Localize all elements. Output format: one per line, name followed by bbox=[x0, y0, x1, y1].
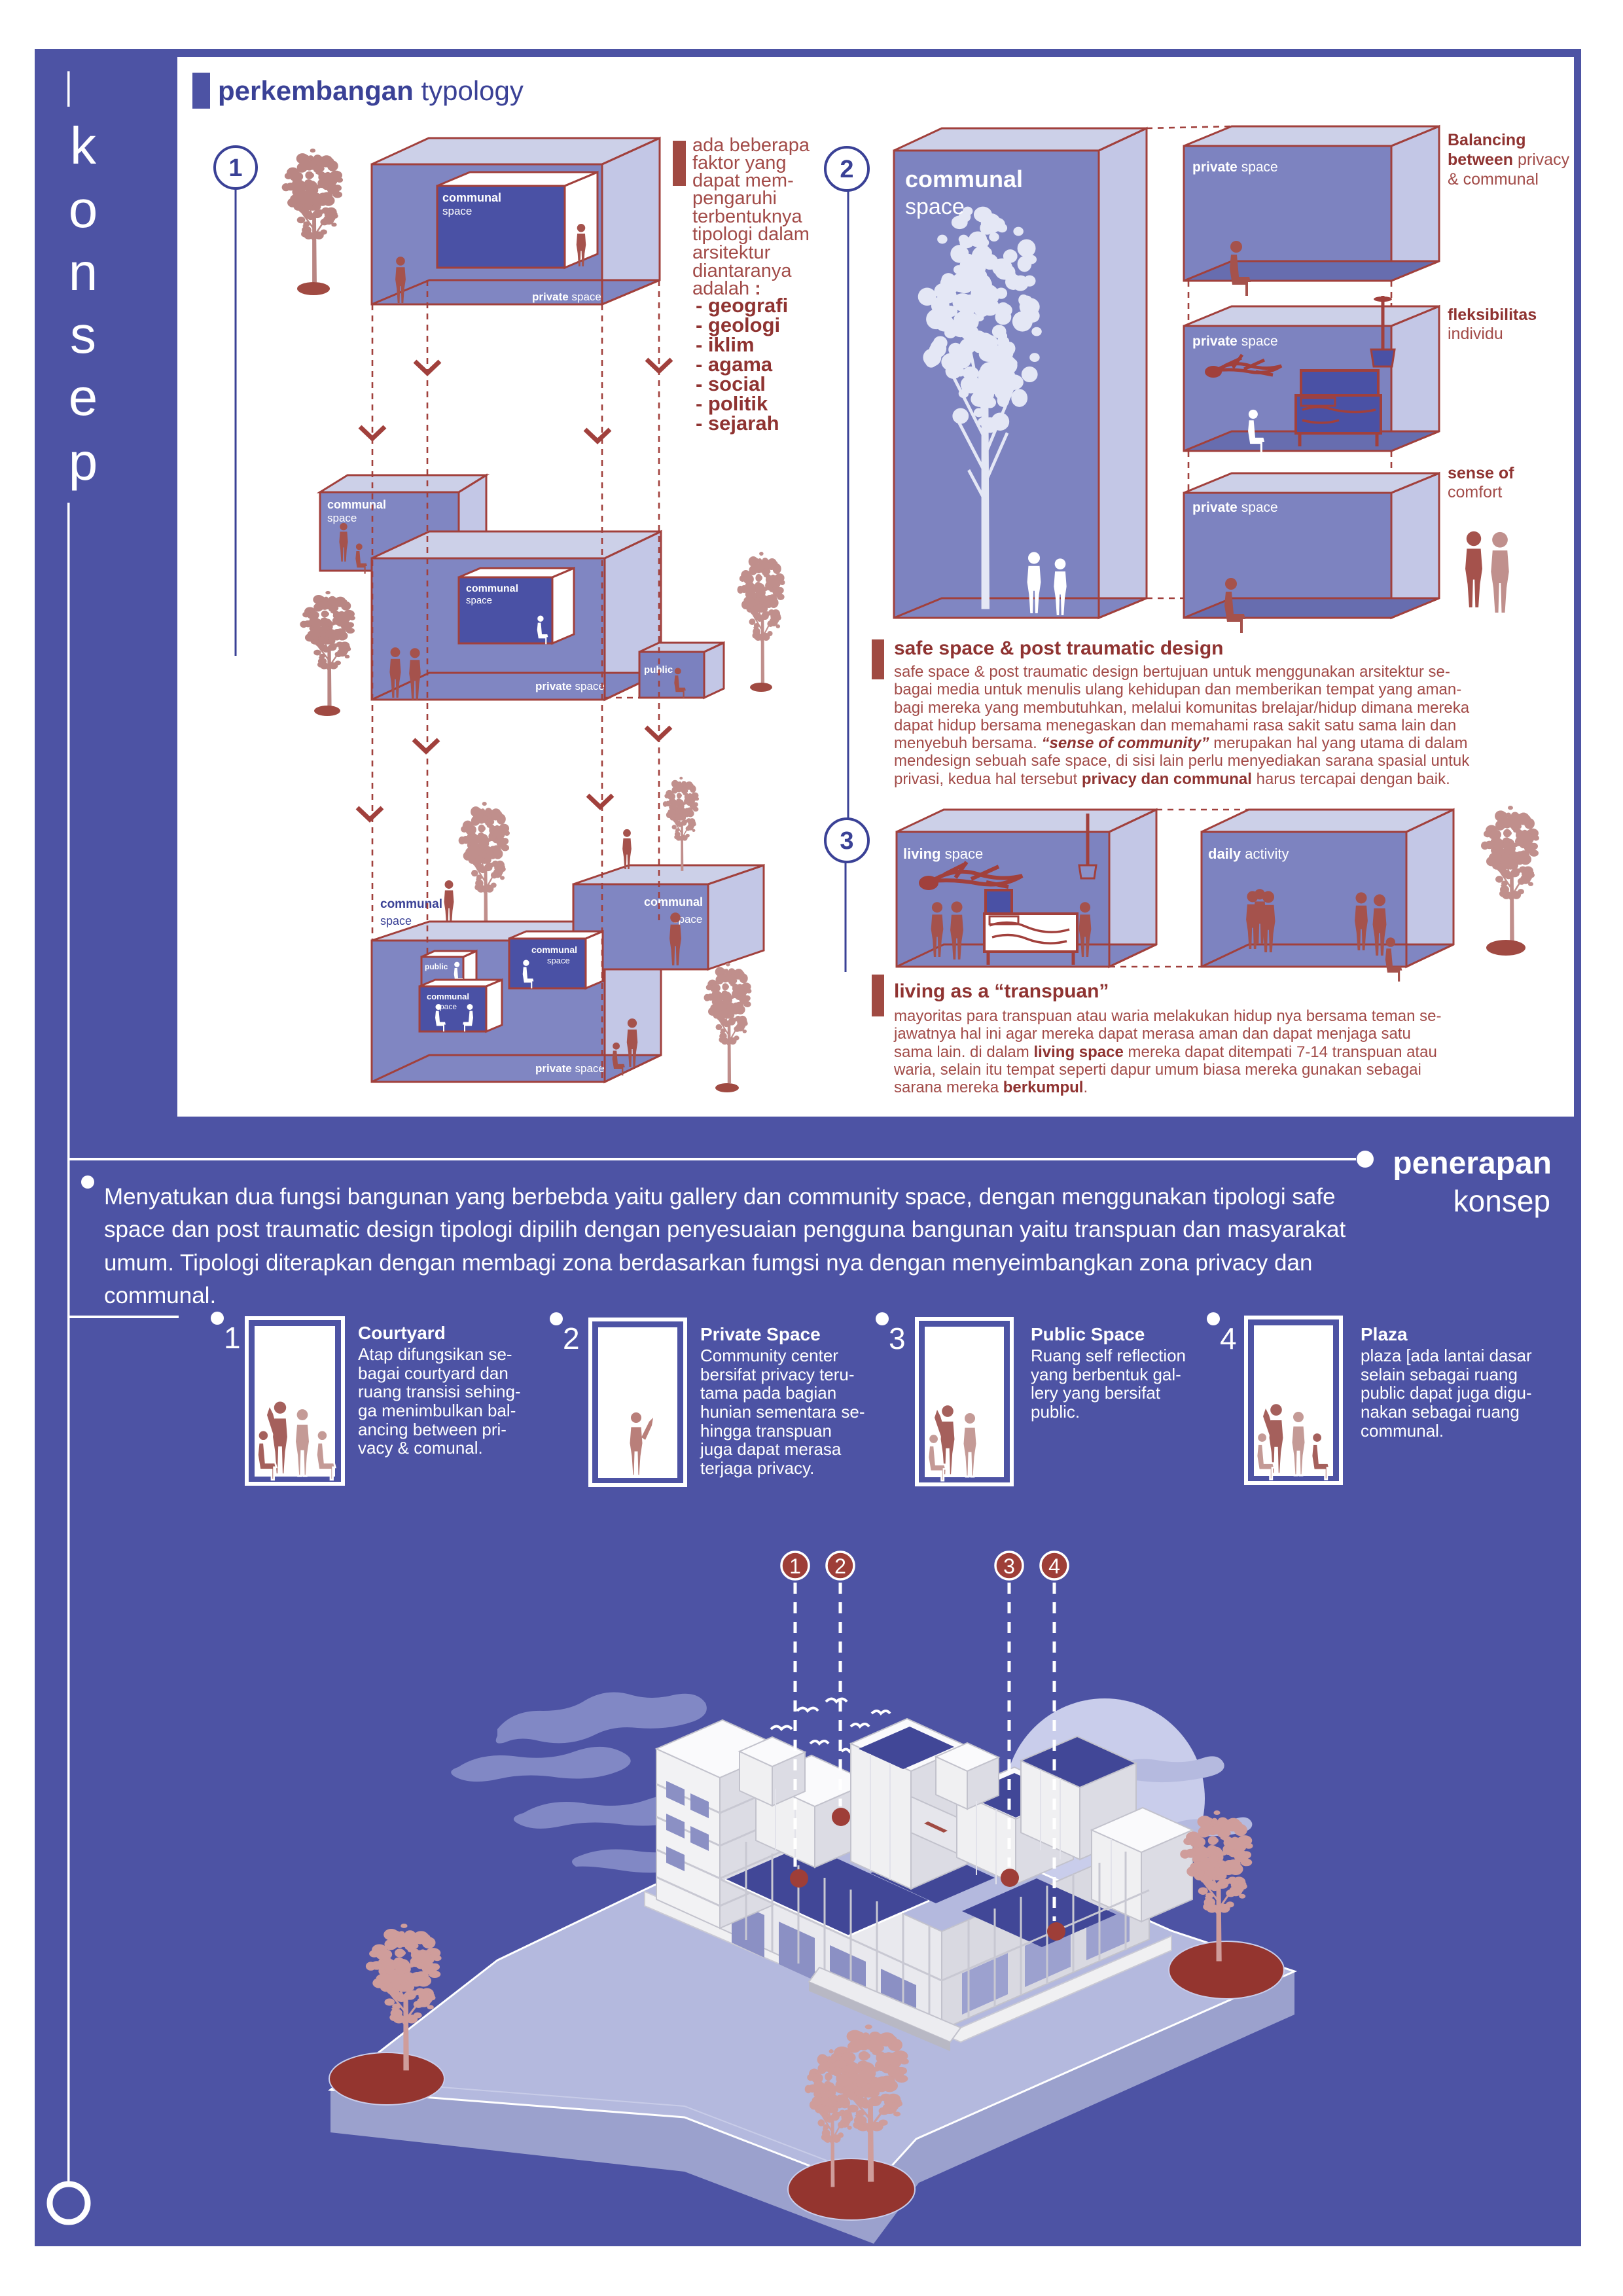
svg-text:private space: private space bbox=[535, 680, 605, 692]
svg-text:s: s bbox=[70, 306, 96, 364]
svg-text:private space: private space bbox=[535, 1062, 605, 1075]
svg-text:bagai media untuk menulis ulan: bagai media untuk menulis ulang kehidupa… bbox=[894, 681, 1461, 698]
svg-text:selain sebagai ruang: selain sebagai ruang bbox=[1361, 1365, 1518, 1384]
svg-text:space: space bbox=[547, 956, 570, 965]
svg-text:terjaga privacy.: terjaga privacy. bbox=[700, 1458, 814, 1478]
svg-text:private space: private space bbox=[1192, 160, 1278, 175]
svg-text:mendesign sebuah safe space, d: mendesign sebuah safe space, di sisi lai… bbox=[894, 752, 1470, 770]
svg-text:yang berbentuk gal-: yang berbentuk gal- bbox=[1031, 1365, 1181, 1384]
svg-text:tama pada bagian: tama pada bagian bbox=[700, 1383, 836, 1403]
svg-text:mayoritas para transpuan atau: mayoritas para transpuan atau waria mela… bbox=[894, 1007, 1441, 1025]
svg-text:space: space bbox=[380, 914, 412, 927]
svg-text:1: 1 bbox=[789, 1554, 801, 1578]
svg-text:2: 2 bbox=[563, 1321, 580, 1355]
svg-text:waria, selain itu tempat seper: waria, selain itu tempat seperti dapur u… bbox=[893, 1061, 1421, 1079]
svg-text:lery yang bersifat: lery yang bersifat bbox=[1031, 1383, 1161, 1403]
svg-text:perkembangan typology: perkembangan typology bbox=[218, 75, 524, 106]
svg-text:1: 1 bbox=[224, 1321, 241, 1355]
svg-text:Ruang self reflection: Ruang self reflection bbox=[1031, 1346, 1186, 1365]
svg-text:Community center: Community center bbox=[700, 1346, 838, 1365]
svg-text:Menyatukan dua fungsi banguna: Menyatukan dua fungsi bangunan yang berb… bbox=[104, 1184, 1336, 1210]
svg-text:menyebuh bersama. “sense of c: menyebuh bersama. “sense of community” m… bbox=[894, 734, 1467, 752]
svg-text:hingga transpuan: hingga transpuan bbox=[700, 1421, 832, 1441]
svg-text:3: 3 bbox=[1003, 1554, 1015, 1578]
svg-text:communal: communal bbox=[905, 166, 1023, 192]
svg-text:safe space & post traumatic de: safe space & post traumatic design bbox=[894, 637, 1224, 659]
svg-text:Atap difungsikan se-: Atap difungsikan se- bbox=[358, 1344, 512, 1364]
svg-text:living as a “transpuan”: living as a “transpuan” bbox=[894, 980, 1109, 1002]
svg-text:fleksibilitas: fleksibilitas bbox=[1448, 306, 1537, 324]
svg-text:4: 4 bbox=[1048, 1554, 1060, 1578]
svg-text:sarana mereka berkumpul.: sarana mereka berkumpul. bbox=[894, 1079, 1088, 1096]
svg-text:penerapan: penerapan bbox=[1393, 1146, 1552, 1181]
svg-text:communal: communal bbox=[427, 992, 469, 1001]
svg-text:plaza [ada lantai dasar: plaza [ada lantai dasar bbox=[1361, 1346, 1532, 1365]
svg-text:hunian sementara se-: hunian sementara se- bbox=[700, 1402, 865, 1422]
svg-text:o: o bbox=[69, 180, 98, 238]
svg-text:communal: communal bbox=[442, 191, 501, 204]
svg-text:private space: private space bbox=[1192, 500, 1278, 515]
svg-text:Courtyard: Courtyard bbox=[358, 1323, 446, 1343]
svg-text:communal: communal bbox=[380, 897, 442, 911]
svg-text:Balancing: Balancing bbox=[1448, 131, 1525, 149]
svg-text:k: k bbox=[70, 117, 97, 175]
svg-text:Public Space: Public Space bbox=[1031, 1324, 1145, 1344]
svg-text:daily activity: daily activity bbox=[1208, 846, 1289, 862]
svg-text:public: public bbox=[425, 962, 448, 971]
svg-text:Plaza: Plaza bbox=[1361, 1324, 1408, 1344]
svg-text:communal.: communal. bbox=[1361, 1421, 1444, 1441]
svg-text:jawatnya hal ini agar mereka d: jawatnya hal ini agar mereka dapat meras… bbox=[893, 1025, 1411, 1043]
svg-text:& communal: & communal bbox=[1448, 170, 1539, 188]
svg-text:sama lain. di dalam living spa: sama lain. di dalam living space mereka … bbox=[894, 1043, 1437, 1061]
svg-text:konsep: konsep bbox=[1454, 1184, 1550, 1218]
svg-text:bersifat privacy teru-: bersifat privacy teru- bbox=[700, 1365, 855, 1384]
svg-text:umum. Tipologi diterapkan deng: umum. Tipologi diterapkan dengan membagi… bbox=[104, 1250, 1312, 1276]
svg-text:safe space & post traumatic de: safe space & post traumatic design bertu… bbox=[894, 663, 1450, 681]
svg-text:communal: communal bbox=[466, 583, 518, 594]
svg-text:public.: public. bbox=[1031, 1402, 1080, 1422]
svg-text:ga menimbulkan bal-: ga menimbulkan bal- bbox=[358, 1401, 516, 1420]
svg-text:communal: communal bbox=[644, 895, 703, 908]
svg-text:communal: communal bbox=[327, 498, 386, 511]
svg-text:n: n bbox=[69, 243, 98, 301]
svg-text:space: space bbox=[905, 194, 965, 219]
svg-text:2: 2 bbox=[834, 1554, 846, 1578]
svg-text:3: 3 bbox=[840, 827, 853, 855]
svg-text:vacy & comunal.: vacy & comunal. bbox=[358, 1438, 483, 1458]
svg-text:ancing between pri-: ancing between pri- bbox=[358, 1420, 507, 1439]
svg-text:e: e bbox=[69, 368, 98, 426]
svg-text:communal: communal bbox=[531, 944, 577, 955]
svg-text:- sejarah: - sejarah bbox=[696, 412, 779, 435]
svg-text:sense of: sense of bbox=[1448, 464, 1514, 482]
svg-text:space: space bbox=[466, 595, 492, 606]
svg-text:comfort: comfort bbox=[1448, 483, 1502, 501]
svg-text:juga dapat merasa: juga dapat merasa bbox=[700, 1439, 842, 1459]
svg-text:private space: private space bbox=[1192, 334, 1278, 349]
svg-text:living space: living space bbox=[903, 846, 983, 862]
svg-text:nakan sebagai ruang: nakan sebagai ruang bbox=[1361, 1402, 1520, 1422]
svg-text:communal.: communal. bbox=[104, 1283, 216, 1308]
svg-text:Private Space: Private Space bbox=[700, 1324, 821, 1344]
svg-text:space: space bbox=[327, 512, 357, 524]
svg-text:bagi mereka yang membutuhkan,: bagi mereka yang membutuhkan, melalui ko… bbox=[894, 699, 1470, 717]
svg-text:1: 1 bbox=[228, 154, 242, 182]
svg-text:dapat hidup bersama menegaskan: dapat hidup bersama menegaskan dan memah… bbox=[894, 717, 1456, 734]
svg-text:space: space bbox=[442, 205, 472, 217]
svg-text:4: 4 bbox=[1220, 1321, 1237, 1355]
svg-text:privasi, kedua hal tersebut pr: privasi, kedua hal tersebut privacy dan … bbox=[894, 770, 1450, 788]
svg-text:bagai courtyard dan: bagai courtyard dan bbox=[358, 1363, 508, 1383]
svg-text:ruang transisi sehing-: ruang transisi sehing- bbox=[358, 1382, 521, 1401]
svg-text:2: 2 bbox=[840, 156, 853, 183]
svg-text:3: 3 bbox=[889, 1321, 906, 1355]
svg-text:public dapat juga digu-: public dapat juga digu- bbox=[1361, 1383, 1532, 1403]
svg-text:individu: individu bbox=[1448, 325, 1503, 343]
svg-text:private space: private space bbox=[532, 291, 601, 303]
svg-text:space dan post traumatic desig: space dan post traumatic design tipologi… bbox=[104, 1217, 1346, 1242]
svg-text:p: p bbox=[69, 433, 98, 491]
svg-text:between privacy: between privacy bbox=[1448, 151, 1570, 169]
